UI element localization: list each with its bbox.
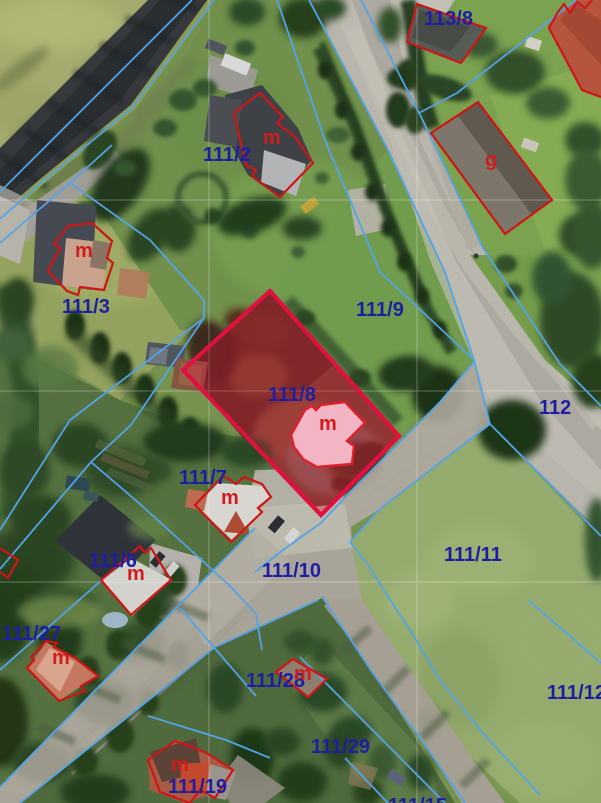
svg-text:111/2: 111/2 [203,144,251,166]
svg-text:111/29: 111/29 [311,736,370,758]
svg-text:m: m [75,240,93,262]
svg-text:m: m [52,647,70,669]
svg-text:m: m [263,127,281,149]
svg-text:111/19: 111/19 [168,776,227,798]
svg-text:111/8: 111/8 [268,384,316,406]
svg-text:111/3: 111/3 [62,296,110,318]
svg-text:m: m [171,754,189,776]
svg-text:m: m [294,663,312,685]
svg-text:111/9: 111/9 [356,299,404,321]
svg-text:g: g [485,149,497,171]
svg-text:112: 112 [539,397,571,419]
svg-text:m: m [127,563,145,585]
svg-text:113/8: 113/8 [424,8,473,30]
svg-text:111/15: 111/15 [388,795,447,803]
svg-text:111/7: 111/7 [179,467,227,489]
svg-text:m: m [319,413,337,435]
svg-text:111/11: 111/11 [444,544,502,566]
svg-text:111/27: 111/27 [2,623,61,645]
svg-text:111/10: 111/10 [262,560,321,582]
svg-text:111/12: 111/12 [547,682,601,704]
svg-text:m: m [221,487,239,509]
